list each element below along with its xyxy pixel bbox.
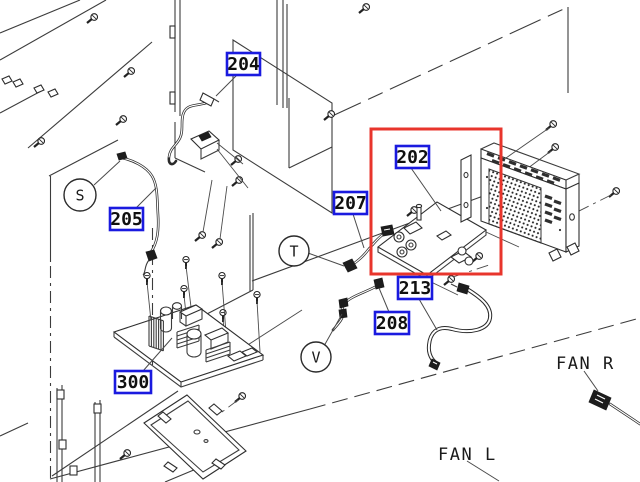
callout-circle-s: S bbox=[64, 179, 96, 211]
part-label-213-text: 213 bbox=[399, 278, 432, 299]
callout-circle-v: V bbox=[301, 342, 331, 372]
part-label-208[interactable]: 208 bbox=[375, 312, 409, 334]
part-label-207-text: 207 bbox=[334, 193, 367, 214]
callout-circle-t: T bbox=[279, 236, 309, 266]
heatsink-enclosure bbox=[461, 143, 579, 261]
part-label-202-text: 202 bbox=[396, 147, 429, 168]
callout-s-text: S bbox=[75, 187, 84, 205]
fan-l-text: FAN L bbox=[438, 445, 497, 465]
fan-r-connector bbox=[589, 390, 640, 424]
part-label-213[interactable]: 213 bbox=[398, 277, 432, 299]
parts-diagram: 204 205 300 202 207 213 208 S T V FAN R … bbox=[0, 0, 640, 482]
part-label-205-text: 205 bbox=[110, 209, 143, 230]
part-label-208-text: 208 bbox=[376, 313, 409, 334]
part-label-207[interactable]: 207 bbox=[334, 192, 367, 214]
part-label-300-text: 300 bbox=[117, 372, 150, 393]
part-label-300[interactable]: 300 bbox=[115, 371, 151, 393]
callout-t-text: T bbox=[289, 243, 298, 261]
coax-cable-213 bbox=[429, 283, 490, 370]
part-label-204-text: 204 bbox=[227, 54, 260, 75]
part-label-205[interactable]: 205 bbox=[110, 208, 143, 230]
part-label-204[interactable]: 204 bbox=[227, 53, 260, 75]
callout-v-text: V bbox=[311, 349, 320, 367]
part-label-202[interactable]: 202 bbox=[396, 146, 429, 168]
fan-r-text: FAN R bbox=[556, 354, 615, 374]
mounting-tray bbox=[144, 395, 246, 479]
cable-204 bbox=[169, 93, 219, 164]
